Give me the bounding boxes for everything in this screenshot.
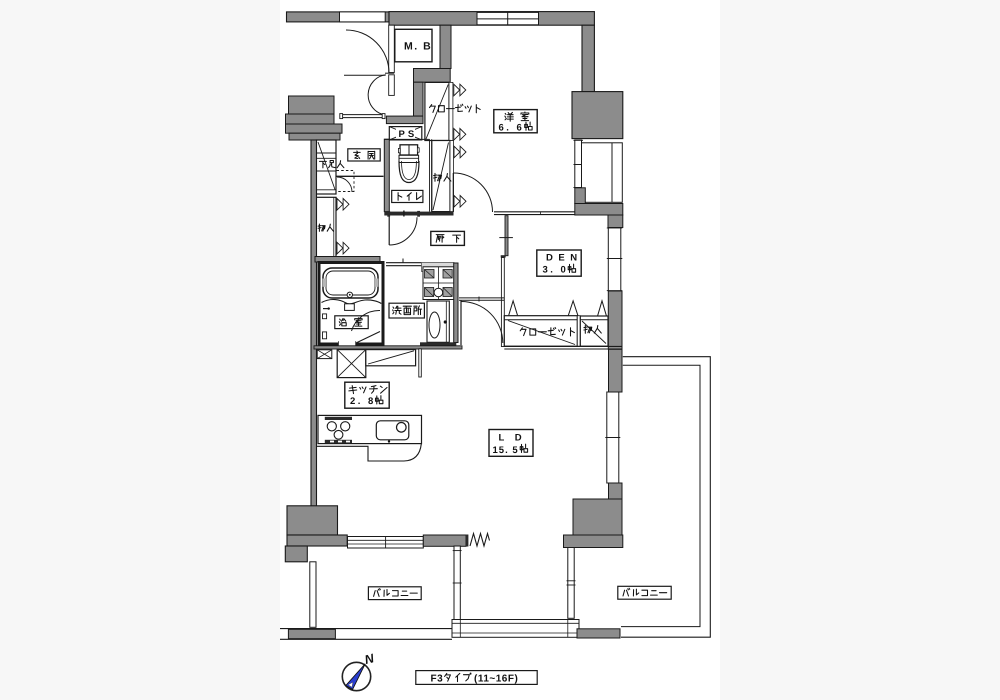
svg-text:L D: L D: [499, 433, 526, 444]
svg-text:DEN: DEN: [546, 253, 583, 264]
svg-text:6. 6: 6. 6: [499, 122, 525, 133]
svg-text:F3: F3: [431, 674, 444, 685]
svg-text:M. B: M. B: [404, 41, 432, 53]
svg-text:(11~16F): (11~16F): [474, 674, 518, 685]
svg-text:PS: PS: [399, 129, 418, 140]
svg-text:15. 5: 15. 5: [493, 445, 519, 456]
svg-text:2. 8: 2. 8: [350, 396, 376, 407]
svg-text:3. 0: 3. 0: [543, 265, 569, 276]
